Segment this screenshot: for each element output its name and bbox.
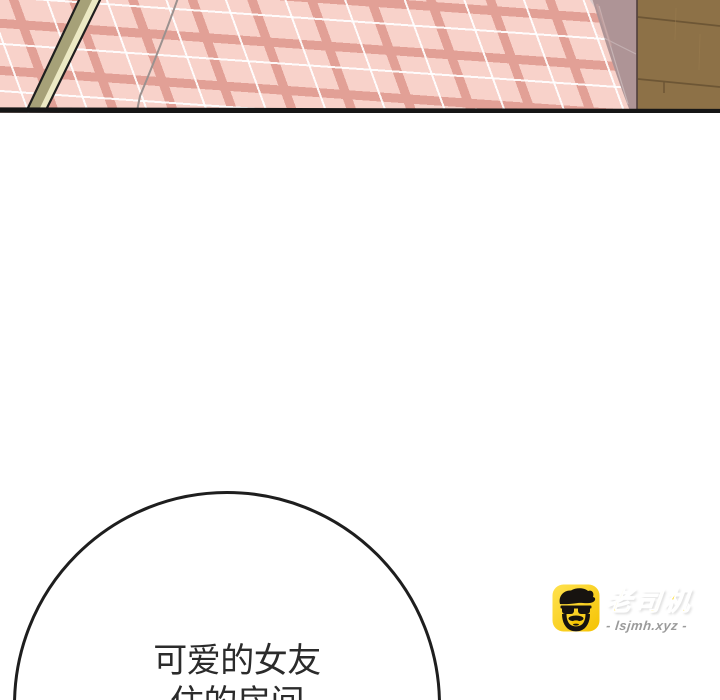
comic-panel	[0, 0, 720, 113]
watermark-site-url: - lsjmh.xyz -	[605, 619, 687, 633]
watermark-text: 老司机 - lsjmh.xyz -	[602, 584, 694, 633]
site-watermark[interactable]: 老司机 - lsjmh.xyz -	[552, 584, 692, 633]
panel-border	[0, 107, 720, 113]
watermark-brand: 老司机	[604, 588, 694, 614]
webtoon-page: 可爱的女友 住的房间 老司机 -	[0, 0, 720, 700]
panel-artwork	[0, 0, 720, 113]
sunglasses-right-lens	[578, 606, 590, 615]
bed-side	[592, 0, 638, 111]
lower-lip	[573, 624, 579, 626]
speech-line-2: 住的房间	[77, 682, 397, 700]
speech-bubble-text: 可爱的女友 住的房间	[77, 640, 397, 700]
blanket-fold-line	[137, 0, 178, 111]
sunglasses-left-lens	[562, 606, 574, 615]
driver-face-icon	[552, 584, 600, 632]
wood-floor	[637, 0, 720, 111]
speech-line-1: 可爱的女友	[77, 640, 397, 682]
